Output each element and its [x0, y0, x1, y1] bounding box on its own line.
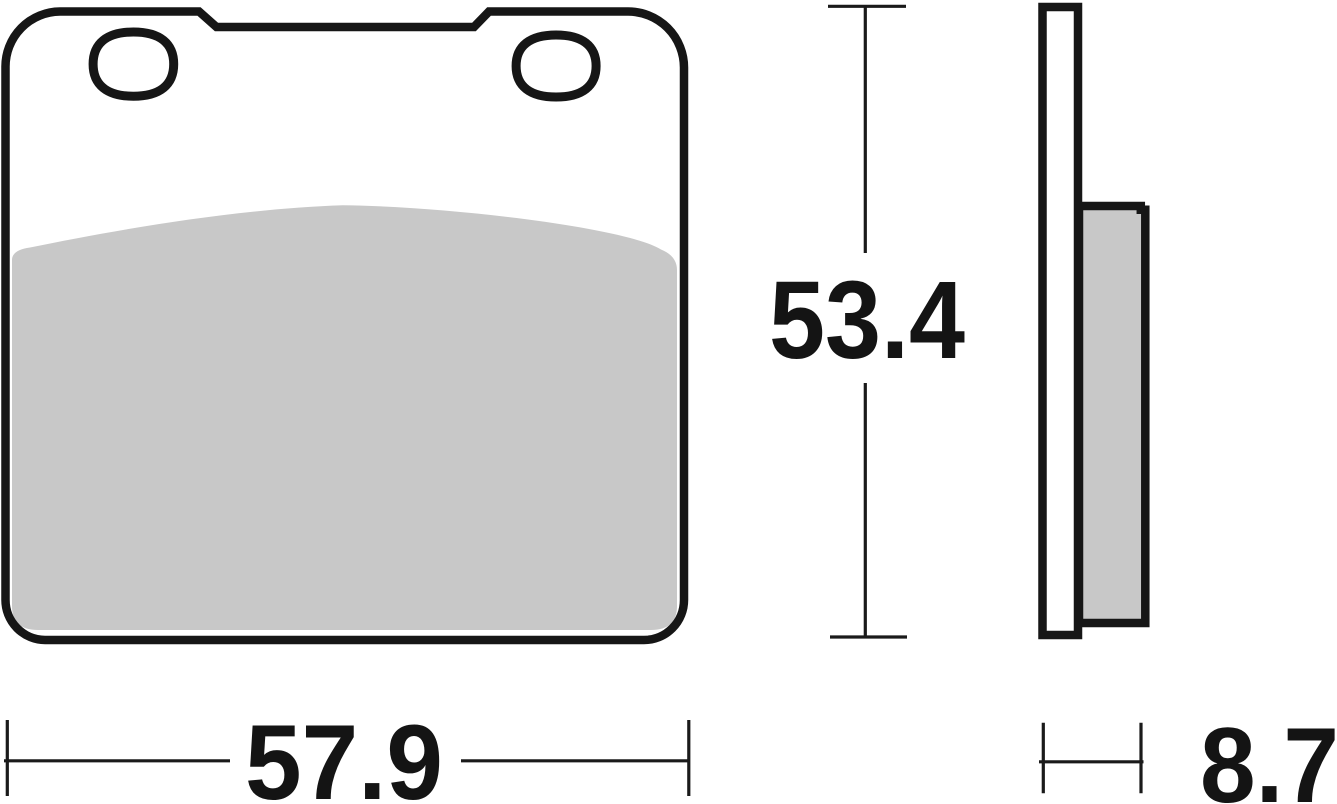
- svg-text:53.4: 53.4: [769, 259, 965, 382]
- svg-text:8.7: 8.7: [1200, 705, 1337, 804]
- svg-text:57.9: 57.9: [245, 702, 443, 804]
